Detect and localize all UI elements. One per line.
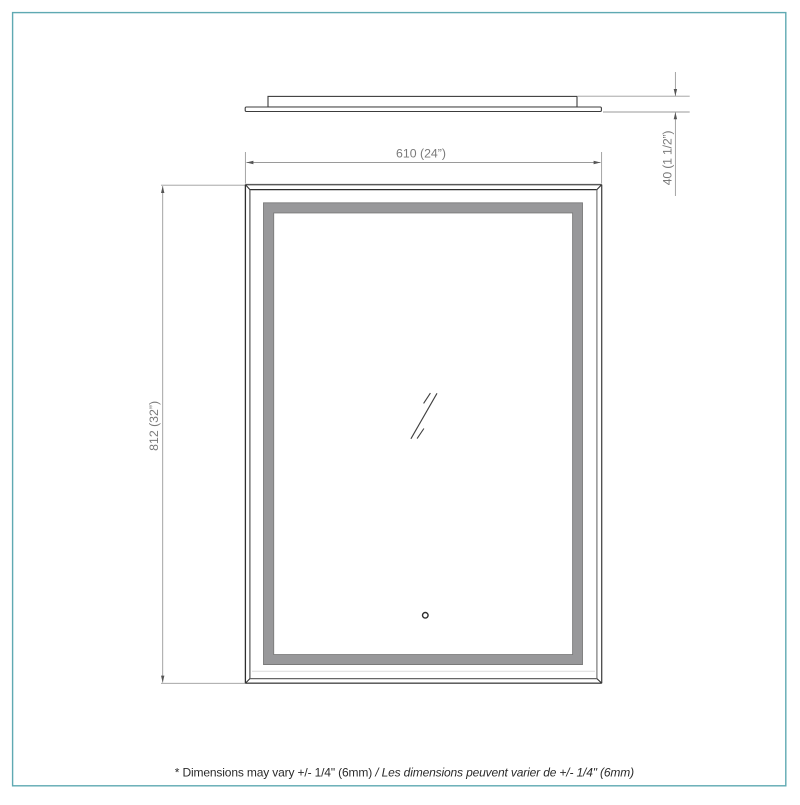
svg-text:* Dimensions may vary +/- 1/4": * Dimensions may vary +/- 1/4" (6mm) / L…	[175, 765, 634, 779]
svg-text:812 (32”): 812 (32”)	[147, 401, 161, 451]
svg-text:40 (1 1/2”): 40 (1 1/2”)	[661, 131, 675, 186]
svg-text:610 (24”): 610 (24”)	[396, 146, 446, 160]
